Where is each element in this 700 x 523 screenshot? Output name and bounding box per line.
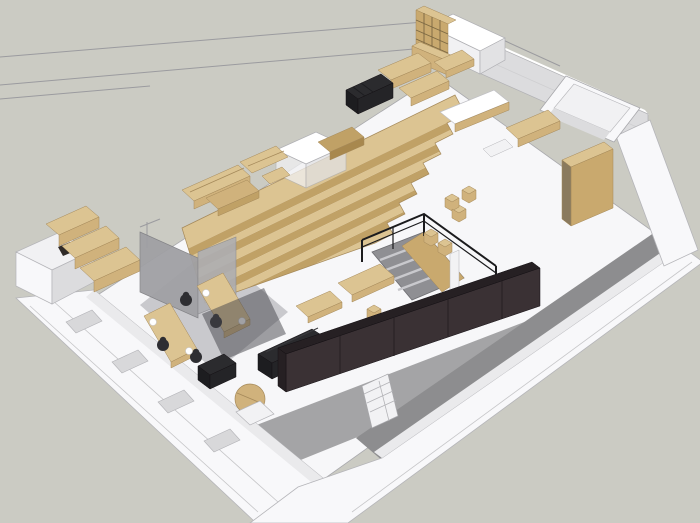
3d-model-viewport[interactable] xyxy=(0,0,700,523)
counter-end xyxy=(278,348,286,392)
model-scene xyxy=(0,0,700,523)
